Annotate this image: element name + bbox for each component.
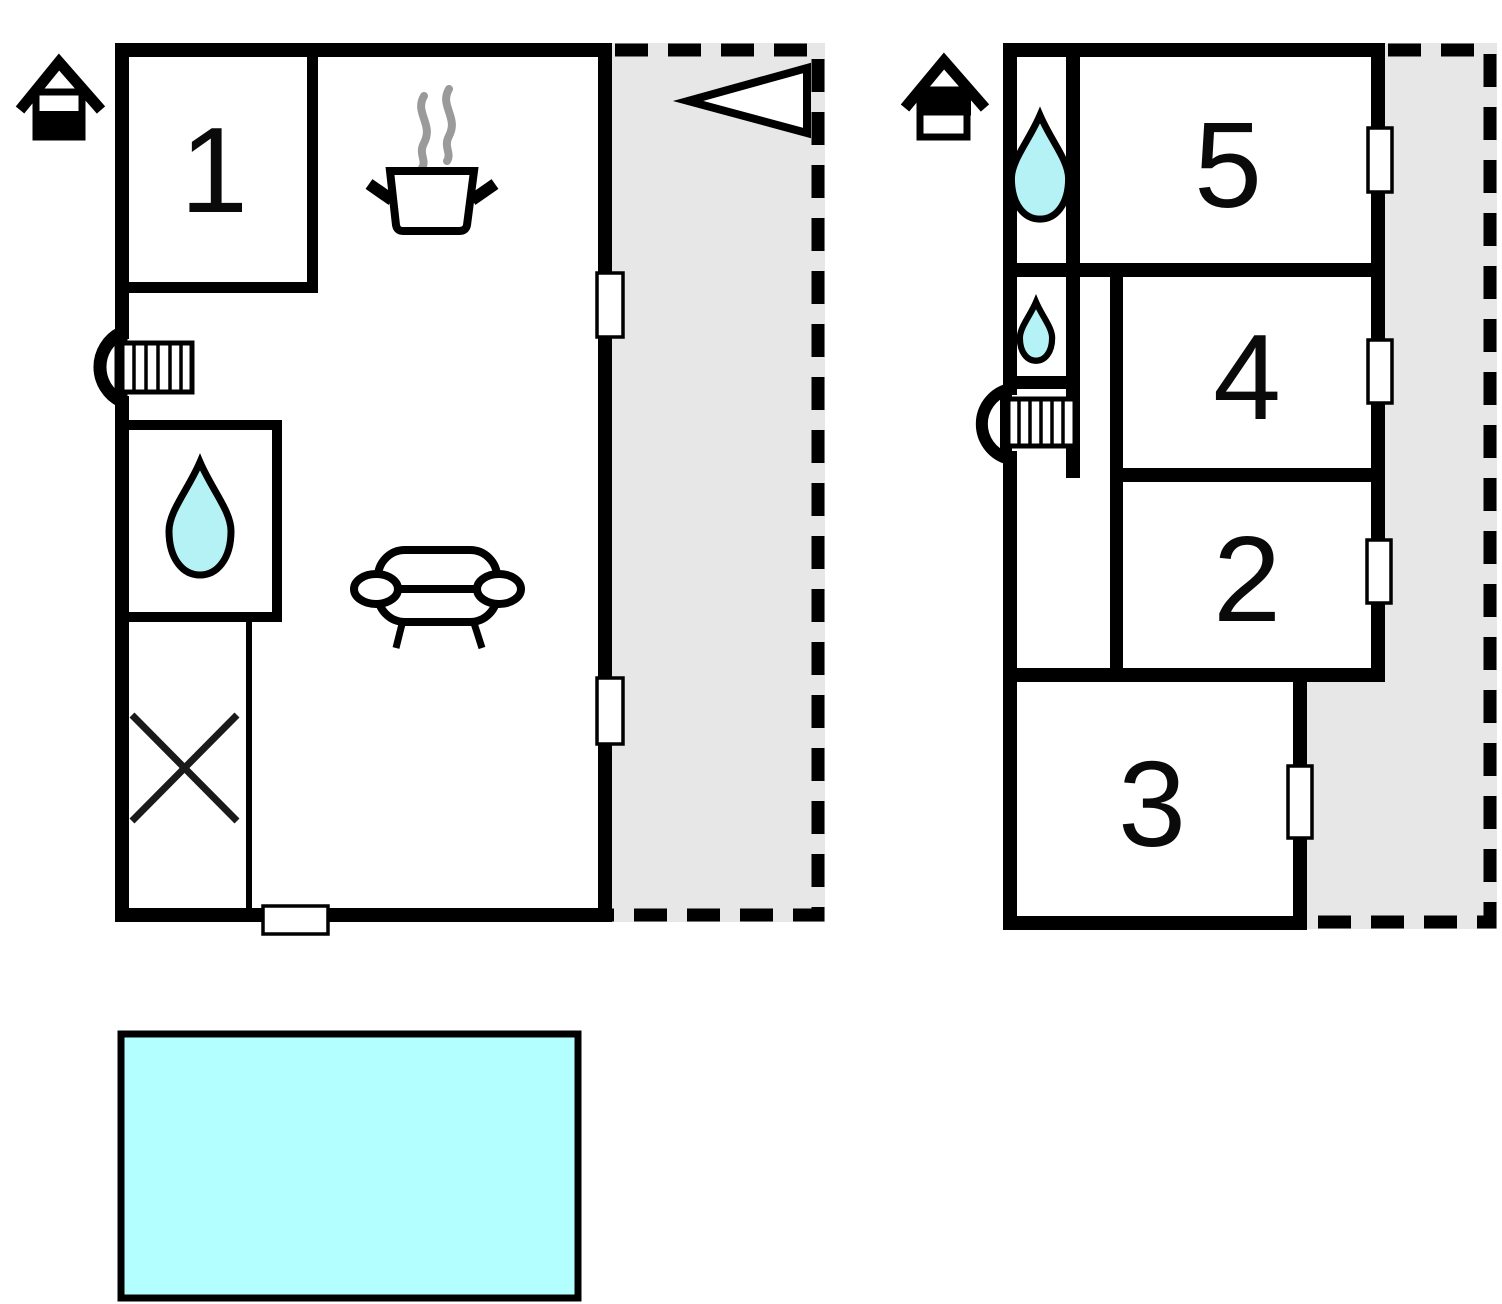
swimming-pool	[121, 1034, 578, 1298]
room-label-2: 2	[1213, 511, 1281, 647]
stairs-icon	[982, 390, 1075, 458]
upper-floor-house-icon	[905, 61, 985, 137]
window-marker	[1288, 766, 1312, 838]
ground-floor-plan: 1	[20, 43, 825, 934]
terrace-area	[612, 43, 825, 922]
window-marker	[1368, 128, 1392, 192]
floor-plan-canvas: 1	[0, 0, 1502, 1304]
stairs-icon	[100, 333, 192, 401]
floor-plan-page: 1	[0, 0, 1502, 1304]
upper-floor-plan: 5 4 2 3	[905, 43, 1497, 930]
room-label-3: 3	[1118, 736, 1186, 872]
window-marker	[597, 678, 623, 744]
room-label-1: 1	[180, 102, 248, 238]
window-marker	[597, 273, 623, 337]
door-marker	[263, 906, 328, 934]
room-label-4: 4	[1213, 309, 1281, 445]
window-marker	[1367, 540, 1391, 603]
window-marker	[1368, 340, 1392, 403]
ground-floor-house-icon	[20, 62, 101, 141]
room-label-5: 5	[1194, 97, 1262, 233]
